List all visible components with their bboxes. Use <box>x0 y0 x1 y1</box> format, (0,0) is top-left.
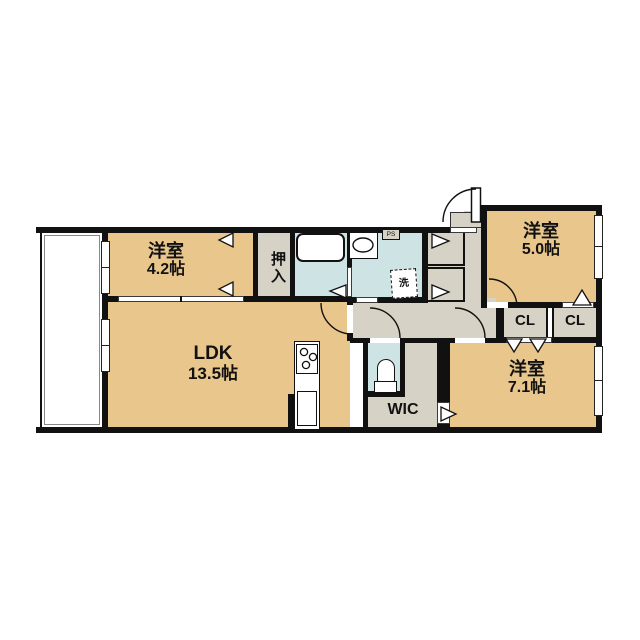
entrance-door-opening <box>450 227 477 233</box>
room-size: 7.1帖 <box>477 379 577 397</box>
room-label-oshiire: 押入 <box>263 240 285 296</box>
room-name: 洋室 <box>116 241 216 261</box>
wic-door-opening <box>437 402 450 424</box>
bathtub-icon <box>296 233 345 262</box>
window-7-1-east <box>594 346 603 416</box>
wall <box>347 297 353 305</box>
floor-plan: PS 洗 洋室 4.2帖 押入 LDK 13.5帖 <box>0 0 640 640</box>
bathroom-door-opening <box>347 267 352 297</box>
window-5-0-east <box>594 215 603 279</box>
room-label-wic: WIC <box>372 401 434 419</box>
washing-machine-space: 洗 <box>390 268 418 299</box>
vanity-sink-icon <box>349 232 378 259</box>
hallway <box>350 298 496 343</box>
room-size: 5.0帖 <box>491 241 591 259</box>
room-7-1-door-opening <box>455 338 485 343</box>
room-label-closet-right: CL <box>552 313 598 330</box>
room-size: 4.2帖 <box>116 261 216 279</box>
wall <box>400 343 405 396</box>
stove-icon <box>296 344 318 374</box>
room-5-0-door-opening <box>487 302 508 308</box>
room-label-western-7-1: 洋室 7.1帖 <box>477 359 577 397</box>
wall <box>485 338 496 343</box>
room-label-western-4-2: 洋室 4.2帖 <box>116 241 216 279</box>
room-size: 13.5帖 <box>163 364 263 383</box>
wall <box>477 205 602 211</box>
window-balcony-4-2 <box>101 241 110 294</box>
pipe-space-label: PS <box>387 231 396 238</box>
wall <box>363 391 368 429</box>
wall <box>422 231 428 297</box>
kitchen-sink-icon <box>297 391 317 426</box>
balcony-inner-line <box>44 235 100 425</box>
closet-right-opening <box>562 302 594 308</box>
closet-left-opening <box>506 337 552 343</box>
room-label-ldk: LDK 13.5帖 <box>163 343 263 383</box>
balcony <box>40 231 104 429</box>
wall <box>437 338 450 402</box>
wall <box>496 337 506 343</box>
wall <box>363 338 368 397</box>
window-balcony-ldk <box>101 319 110 372</box>
room-name: 洋室 <box>491 221 591 241</box>
washroom-door-opening <box>356 297 378 303</box>
room-name: LDK <box>163 343 263 364</box>
room-name: 洋室 <box>477 359 577 379</box>
wall <box>552 337 602 343</box>
sliding-door-center-tick <box>180 296 182 302</box>
room-label-closet-left: CL <box>502 313 548 330</box>
wall <box>104 296 118 302</box>
wall <box>508 302 562 308</box>
toilet-icon-tank <box>374 381 397 393</box>
ldk-door-opening <box>347 305 353 333</box>
wall <box>594 302 602 308</box>
room-label-western-5-0: 洋室 5.0帖 <box>491 221 591 259</box>
wall <box>244 296 352 302</box>
wall <box>437 424 450 429</box>
hall-storage-lower <box>424 267 465 302</box>
washing-machine-label: 洗 <box>399 278 410 290</box>
hall-storage-upper <box>424 230 465 266</box>
toilet-door-opening <box>370 338 400 343</box>
pipe-space-box: PS <box>382 229 400 240</box>
wall <box>290 227 295 302</box>
entrance-porch <box>450 212 483 228</box>
wall <box>253 231 258 297</box>
wall <box>481 205 487 305</box>
